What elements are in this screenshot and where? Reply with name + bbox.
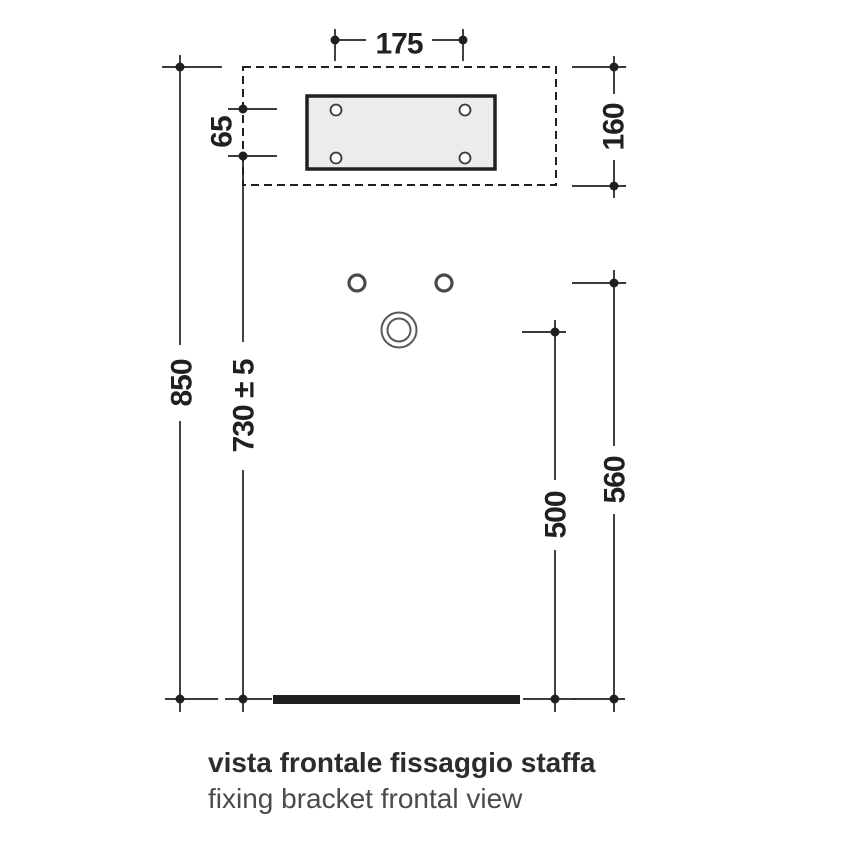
dim-65-label: 65 [205, 116, 238, 148]
caption-subtitle: fixing bracket frontal view [208, 783, 523, 814]
dim-730-label: 730 ± 5 [227, 359, 260, 452]
dim-560-label: 560 [598, 456, 631, 503]
dim-point [610, 63, 619, 72]
dim-point [551, 695, 560, 704]
bracket-hole-top-right [460, 105, 471, 116]
dim-175-label: 175 [375, 27, 422, 60]
dim-500-label: 500 [539, 491, 572, 538]
floor-line [273, 695, 520, 704]
dim-point [610, 695, 619, 704]
fixture-hole-right [436, 275, 452, 291]
fixture-hole-left [349, 275, 365, 291]
dim-point [239, 105, 248, 114]
dim-850-label: 850 [165, 359, 198, 406]
dim-point [610, 182, 619, 191]
dim-160-label: 160 [597, 103, 630, 150]
dim-point [176, 695, 185, 704]
caption-title: vista frontale fissaggio staffa [208, 747, 596, 778]
bracket-hole-bottom-left [331, 153, 342, 164]
dim-point [610, 279, 619, 288]
dim-point [551, 328, 560, 337]
dim-point [239, 695, 248, 704]
bracket-hole-top-left [331, 105, 342, 116]
technical-drawing: 175 65 160 850 [0, 0, 850, 850]
dim-point [331, 36, 340, 45]
dim-point [176, 63, 185, 72]
dim-point [459, 36, 468, 45]
outlet-hole-inner [388, 319, 411, 342]
fixing-bracket-drawing-page: 175 65 160 850 [0, 0, 850, 850]
bracket-hole-bottom-right [460, 153, 471, 164]
